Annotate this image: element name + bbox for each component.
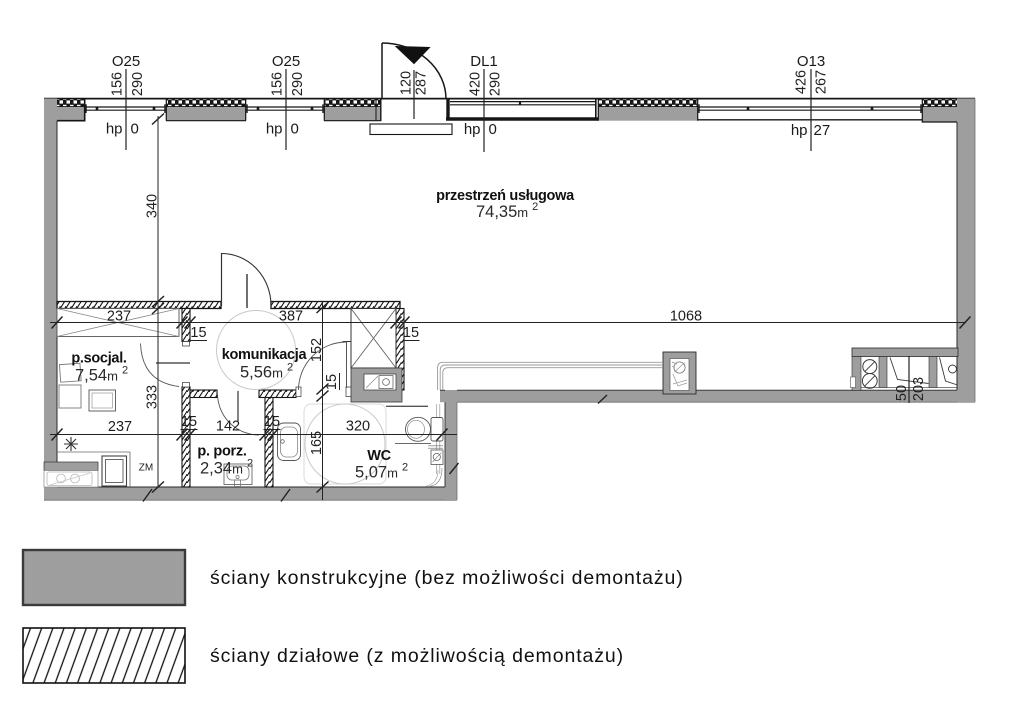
svg-text:5,07m2: 5,07m2 xyxy=(355,462,408,482)
svg-text:165: 165 xyxy=(309,431,325,455)
svg-text:15: 15 xyxy=(403,325,419,341)
svg-text:DL1: DL1 xyxy=(470,53,498,70)
svg-text:hp: hp xyxy=(464,121,481,138)
svg-text:WC: WC xyxy=(367,448,391,464)
svg-text:7,54m2: 7,54m2 xyxy=(75,365,128,385)
svg-text:142: 142 xyxy=(216,419,240,435)
svg-text:ZM: ZM xyxy=(139,463,153,474)
svg-text:0: 0 xyxy=(489,121,497,138)
svg-text:przestrzeń usługowa: przestrzeń usługowa xyxy=(436,188,575,204)
svg-text:387: 387 xyxy=(279,309,303,325)
svg-text:333: 333 xyxy=(145,385,161,409)
svg-text:27: 27 xyxy=(814,122,831,139)
svg-text:5,56m2: 5,56m2 xyxy=(240,362,293,382)
svg-text:15: 15 xyxy=(324,374,340,390)
svg-text:287: 287 xyxy=(414,71,430,95)
svg-text:ściany działowe (z możliwością: ściany działowe (z możliwością demontażu… xyxy=(210,645,624,667)
svg-text:203: 203 xyxy=(911,377,927,401)
svg-text:290: 290 xyxy=(290,72,306,96)
svg-text:290: 290 xyxy=(488,72,504,96)
svg-text:267: 267 xyxy=(814,70,830,94)
svg-text:152: 152 xyxy=(309,338,325,362)
svg-text:15: 15 xyxy=(190,325,206,341)
svg-text:156: 156 xyxy=(110,72,126,96)
svg-text:p. porz.: p. porz. xyxy=(197,444,246,460)
svg-text:O13: O13 xyxy=(797,53,825,70)
svg-text:74,35m2: 74,35m2 xyxy=(476,201,538,221)
svg-text:O25: O25 xyxy=(112,53,140,70)
svg-text:156: 156 xyxy=(270,72,286,96)
svg-text:ściany konstrukcyjne (bez możl: ściany konstrukcyjne (bez możliwości dem… xyxy=(210,567,684,589)
svg-text:340: 340 xyxy=(145,194,161,218)
svg-text:0: 0 xyxy=(131,121,139,138)
svg-text:237: 237 xyxy=(108,419,132,435)
svg-text:O25: O25 xyxy=(272,53,300,70)
svg-text:120: 120 xyxy=(399,71,415,95)
svg-text:237: 237 xyxy=(107,309,131,325)
svg-text:hp: hp xyxy=(106,121,123,138)
svg-text:0: 0 xyxy=(291,121,299,138)
svg-text:hp: hp xyxy=(266,121,283,138)
svg-text:1068: 1068 xyxy=(670,309,702,325)
svg-text:420: 420 xyxy=(468,72,484,96)
svg-text:426: 426 xyxy=(794,70,810,94)
svg-text:hp: hp xyxy=(791,122,808,139)
svg-text:komunikacja: komunikacja xyxy=(222,347,308,363)
svg-text:15: 15 xyxy=(264,414,280,430)
svg-text:15: 15 xyxy=(181,414,197,430)
svg-text:p.socjal.: p.socjal. xyxy=(71,351,127,367)
svg-text:50: 50 xyxy=(894,385,910,401)
svg-text:320: 320 xyxy=(346,419,370,435)
svg-text:290: 290 xyxy=(130,72,146,96)
